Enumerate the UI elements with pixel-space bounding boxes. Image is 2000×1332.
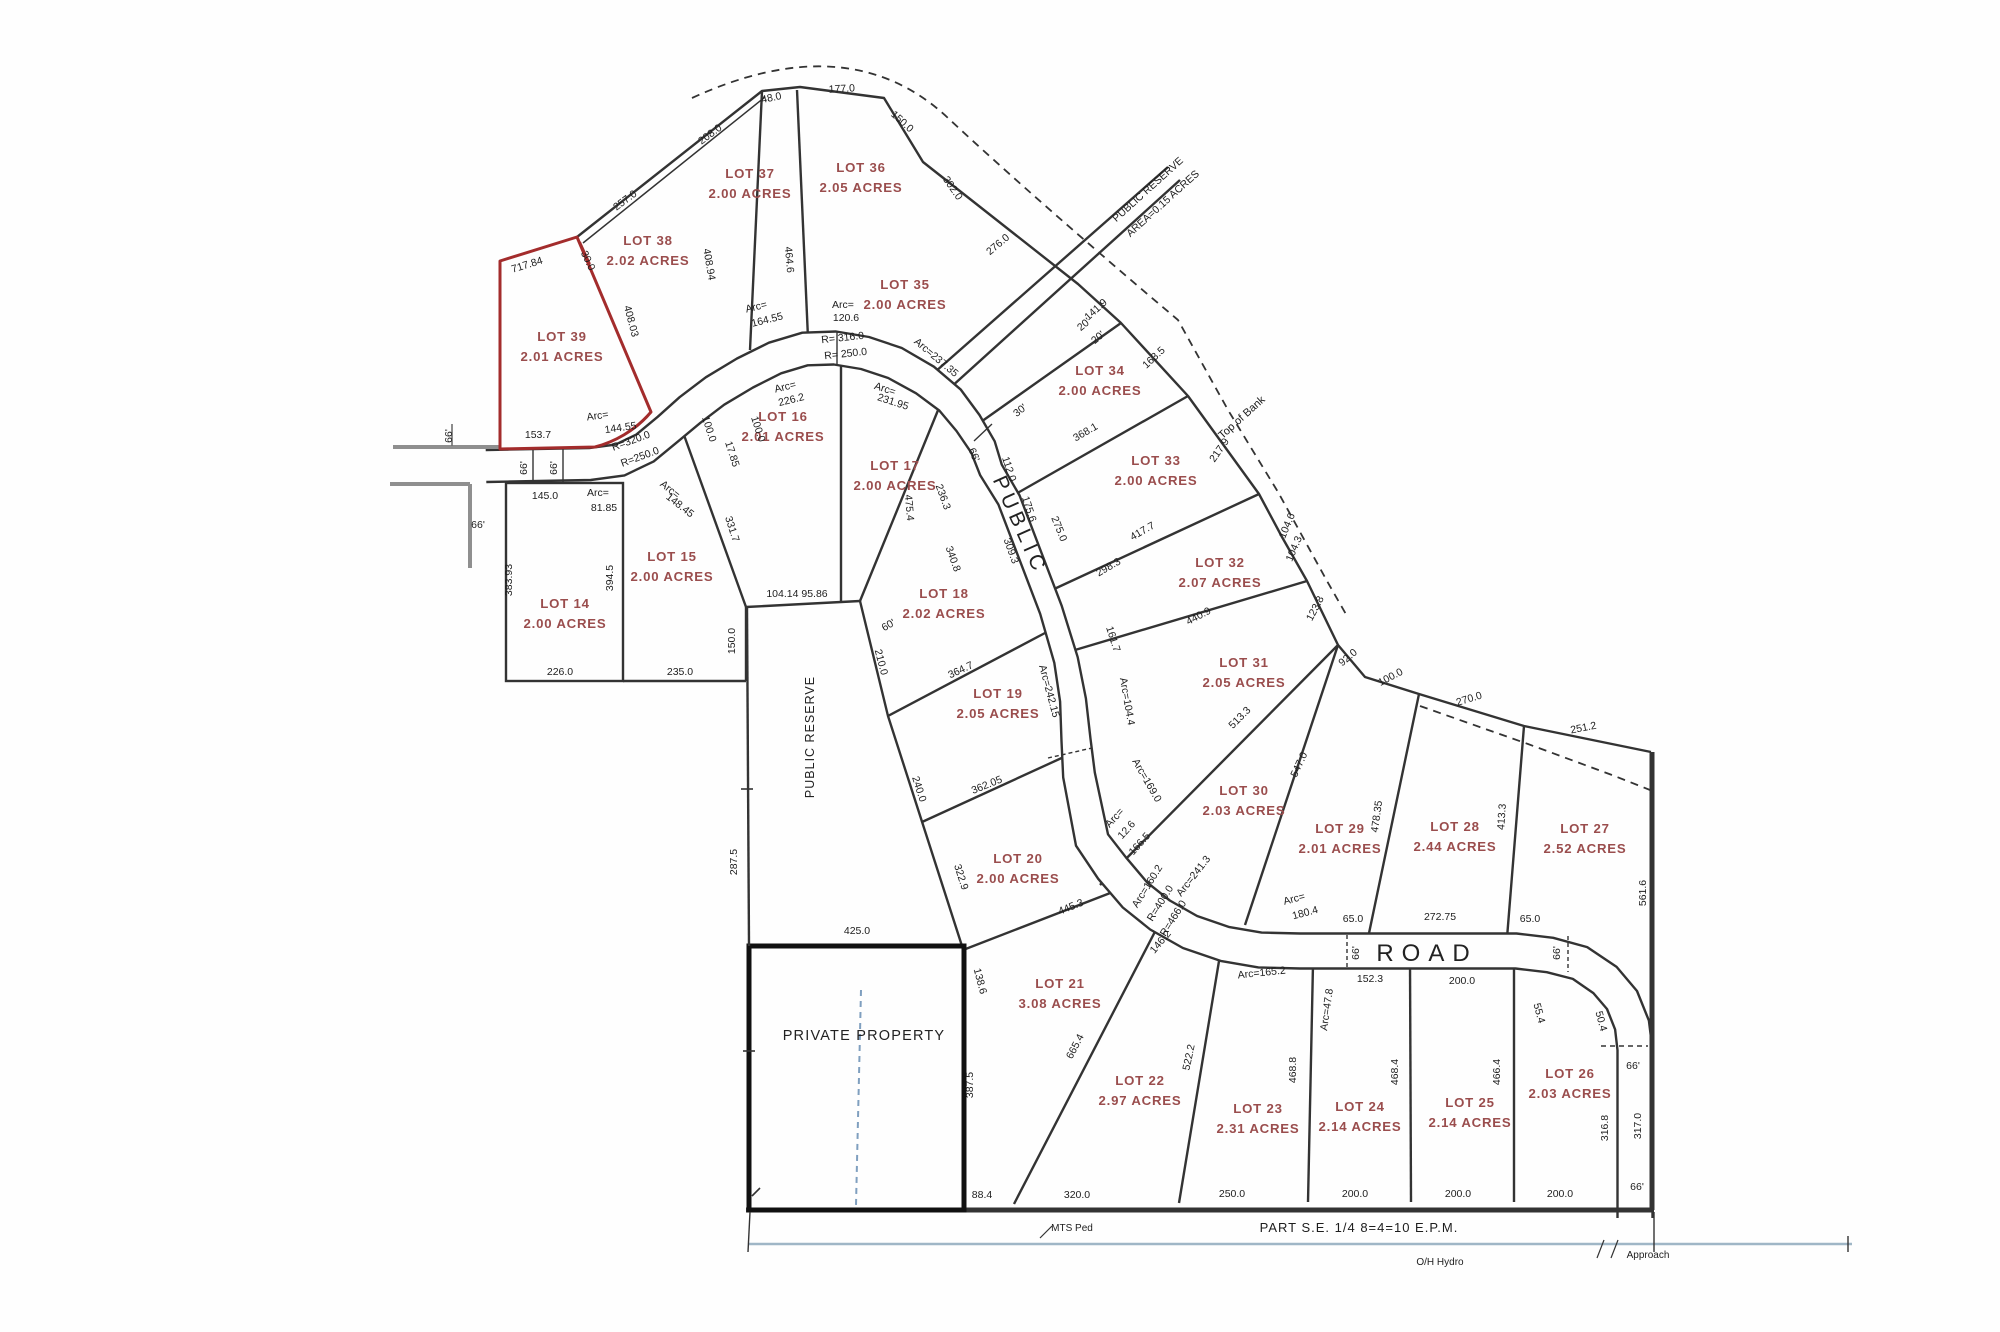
svg-text:104.14 95.86: 104.14 95.86 <box>766 588 827 600</box>
svg-text:ROAD: ROAD <box>1376 940 1477 967</box>
svg-text:2.00 ACRES: 2.00 ACRES <box>1058 383 1141 398</box>
svg-text:2.07 ACRES: 2.07 ACRES <box>1178 575 1261 590</box>
svg-text:LOT 28: LOT 28 <box>1430 819 1480 834</box>
svg-text:2.00 ACRES: 2.00 ACRES <box>863 297 946 312</box>
svg-text:LOT 17: LOT 17 <box>870 458 920 473</box>
svg-text:2.00 ACRES: 2.00 ACRES <box>708 186 791 201</box>
svg-text:200.0: 200.0 <box>1342 1188 1368 1200</box>
svg-text:Arc=: Arc= <box>832 299 854 311</box>
svg-text:2.05 ACRES: 2.05 ACRES <box>819 180 902 195</box>
svg-text:65.0: 65.0 <box>1520 913 1541 925</box>
svg-text:150.0: 150.0 <box>726 628 738 654</box>
svg-text:66': 66' <box>471 519 485 531</box>
svg-text:2.01 ACRES: 2.01 ACRES <box>1298 841 1381 856</box>
svg-text:2.31 ACRES: 2.31 ACRES <box>1216 1121 1299 1136</box>
svg-text:LOT 20: LOT 20 <box>993 851 1043 866</box>
svg-text:200.0: 200.0 <box>1449 975 1475 987</box>
svg-text:LOT 22: LOT 22 <box>1115 1073 1165 1088</box>
svg-text:383.93: 383.93 <box>503 564 515 596</box>
svg-text:468.8: 468.8 <box>1287 1057 1299 1083</box>
svg-text:66': 66' <box>1626 1060 1640 1072</box>
svg-text:LOT 23: LOT 23 <box>1233 1101 1283 1116</box>
svg-text:226.0: 226.0 <box>547 666 573 678</box>
svg-text:MTS Ped: MTS Ped <box>1051 1223 1093 1234</box>
svg-text:250.0: 250.0 <box>1219 1188 1245 1200</box>
svg-text:LOT 33: LOT 33 <box>1131 453 1181 468</box>
svg-text:LOT 31: LOT 31 <box>1219 655 1269 670</box>
svg-text:317.0: 317.0 <box>1632 1113 1644 1139</box>
svg-text:LOT 21: LOT 21 <box>1035 976 1085 991</box>
svg-text:PART S.E. 1/4 8=4=10 E.P.M.: PART S.E. 1/4 8=4=10 E.P.M. <box>1260 1220 1459 1235</box>
svg-text:LOT 39: LOT 39 <box>537 329 587 344</box>
svg-text:2.00 ACRES: 2.00 ACRES <box>1114 473 1197 488</box>
svg-text:LOT 34: LOT 34 <box>1075 363 1125 378</box>
svg-text:LOT 27: LOT 27 <box>1560 821 1610 836</box>
svg-text:316.8: 316.8 <box>1599 1115 1611 1141</box>
svg-text:2.00 ACRES: 2.00 ACRES <box>853 478 936 493</box>
svg-text:425.0: 425.0 <box>844 925 870 937</box>
svg-text:468.4: 468.4 <box>1389 1059 1401 1085</box>
svg-text:LOT 16: LOT 16 <box>758 409 808 424</box>
svg-text:235.0: 235.0 <box>667 666 693 678</box>
svg-text:561.6: 561.6 <box>1637 880 1649 906</box>
svg-text:Arc=: Arc= <box>587 487 609 499</box>
svg-text:2.03 ACRES: 2.03 ACRES <box>1202 803 1285 818</box>
svg-text:2.00 ACRES: 2.00 ACRES <box>976 871 1059 886</box>
svg-text:2.02 ACRES: 2.02 ACRES <box>902 606 985 621</box>
svg-text:66': 66' <box>1350 946 1362 960</box>
svg-text:177.0: 177.0 <box>828 82 855 95</box>
svg-text:145.0: 145.0 <box>532 490 558 502</box>
svg-text:2.01 ACRES: 2.01 ACRES <box>520 349 603 364</box>
svg-text:2.05 ACRES: 2.05 ACRES <box>956 706 1039 721</box>
svg-text:3.08 ACRES: 3.08 ACRES <box>1018 996 1101 1011</box>
svg-text:LOT 15: LOT 15 <box>647 549 697 564</box>
svg-text:120.6: 120.6 <box>833 312 859 324</box>
svg-text:PRIVATE PROPERTY: PRIVATE PROPERTY <box>783 1028 946 1044</box>
svg-text:PUBLIC RESERVE: PUBLIC RESERVE <box>803 676 817 798</box>
svg-text:2.44 ACRES: 2.44 ACRES <box>1413 839 1496 854</box>
svg-text:LOT 19: LOT 19 <box>973 686 1023 701</box>
svg-text:Approach: Approach <box>1627 1250 1670 1261</box>
svg-text:2.02 ACRES: 2.02 ACRES <box>606 253 689 268</box>
svg-text:LOT 26: LOT 26 <box>1545 1066 1595 1081</box>
svg-text:200.0: 200.0 <box>1445 1188 1471 1200</box>
svg-text:81.85: 81.85 <box>591 502 617 514</box>
svg-text:LOT 25: LOT 25 <box>1445 1095 1495 1110</box>
svg-text:466.4: 466.4 <box>1491 1059 1503 1085</box>
svg-text:66': 66' <box>1551 946 1563 960</box>
svg-text:475.4: 475.4 <box>902 494 916 521</box>
svg-text:152.3: 152.3 <box>1357 973 1383 985</box>
svg-text:88.4: 88.4 <box>972 1189 993 1201</box>
svg-text:LOT 30: LOT 30 <box>1219 783 1269 798</box>
svg-text:413.3: 413.3 <box>1495 803 1509 830</box>
svg-text:LOT 35: LOT 35 <box>880 277 930 292</box>
svg-text:2.00 ACRES: 2.00 ACRES <box>523 616 606 631</box>
svg-text:LOT 32: LOT 32 <box>1195 555 1245 570</box>
svg-text:2.97 ACRES: 2.97 ACRES <box>1098 1093 1181 1108</box>
svg-text:66': 66' <box>548 461 560 475</box>
svg-text:66': 66' <box>443 429 455 443</box>
svg-text:320.0: 320.0 <box>1064 1189 1090 1201</box>
svg-text:2.05 ACRES: 2.05 ACRES <box>1202 675 1285 690</box>
svg-text:2.00 ACRES: 2.00 ACRES <box>630 569 713 584</box>
svg-text:LOT 18: LOT 18 <box>919 586 969 601</box>
svg-text:464.6: 464.6 <box>782 246 796 273</box>
svg-text:O/H Hydro: O/H Hydro <box>1416 1257 1464 1268</box>
svg-text:387.5: 387.5 <box>964 1072 976 1098</box>
svg-text:2.14 ACRES: 2.14 ACRES <box>1428 1115 1511 1130</box>
svg-text:287.5: 287.5 <box>728 849 740 875</box>
svg-text:66': 66' <box>518 461 530 475</box>
svg-text:2.52 ACRES: 2.52 ACRES <box>1543 841 1626 856</box>
svg-text:65.0: 65.0 <box>1343 913 1364 925</box>
svg-text:394.5: 394.5 <box>604 565 616 591</box>
svg-text:200.0: 200.0 <box>1547 1188 1573 1200</box>
svg-text:272.75: 272.75 <box>1424 911 1456 923</box>
svg-text:LOT 37: LOT 37 <box>725 166 775 181</box>
svg-text:LOT 29: LOT 29 <box>1315 821 1365 836</box>
svg-text:2.03 ACRES: 2.03 ACRES <box>1528 1086 1611 1101</box>
svg-text:LOT 24: LOT 24 <box>1335 1099 1385 1114</box>
svg-text:2.14 ACRES: 2.14 ACRES <box>1318 1119 1401 1134</box>
svg-text:LOT 36: LOT 36 <box>836 160 886 175</box>
svg-text:LOT 14: LOT 14 <box>540 596 590 611</box>
svg-text:66': 66' <box>1630 1181 1644 1193</box>
svg-text:LOT 38: LOT 38 <box>623 233 673 248</box>
svg-text:153.7: 153.7 <box>525 429 551 441</box>
